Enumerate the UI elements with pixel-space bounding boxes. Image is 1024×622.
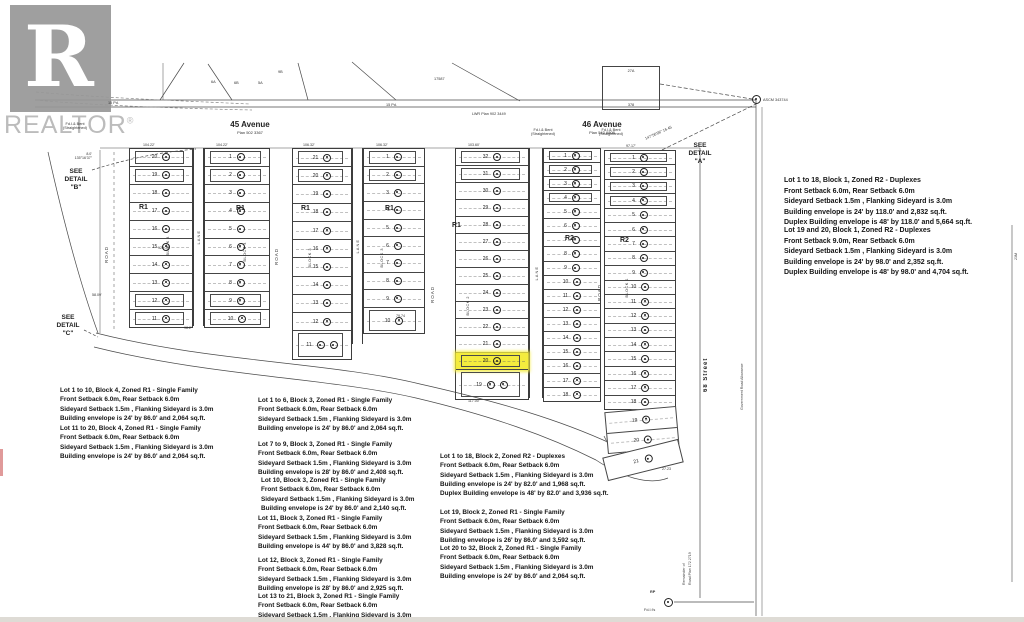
lot-row: 4 bbox=[544, 191, 600, 205]
lot-number: 7 bbox=[564, 237, 567, 243]
lot-number: 19 bbox=[476, 382, 482, 388]
survey-pin-icon bbox=[572, 250, 580, 258]
ascm-marker-icon bbox=[752, 95, 761, 104]
survey-pin-icon bbox=[162, 207, 170, 215]
see-detail-b: SEE DETAIL "B" bbox=[56, 168, 96, 192]
lot-number: 4 bbox=[229, 208, 232, 214]
survey-pin-icon bbox=[573, 320, 581, 328]
block-1-strip: 123456789101112131415161718 bbox=[604, 150, 676, 410]
lot-row: 11 bbox=[130, 310, 192, 327]
lot-number: 21 bbox=[483, 341, 489, 347]
lot-number: 4 bbox=[632, 198, 635, 204]
survey-pin-icon bbox=[493, 306, 501, 314]
lot-row: 8 bbox=[205, 274, 269, 292]
lot-row: 15 bbox=[293, 258, 351, 276]
survey-pin-icon bbox=[162, 279, 170, 287]
survey-pin-icon bbox=[394, 189, 402, 197]
lot-number: 15 bbox=[152, 244, 158, 250]
lot-number: 20 bbox=[152, 154, 158, 160]
lot-number: 7 bbox=[229, 262, 232, 268]
sub-lot-label: 9B bbox=[278, 70, 283, 74]
lot-number: 14 bbox=[152, 262, 158, 268]
survey-pin-icon bbox=[572, 222, 580, 230]
lot-row: 13 bbox=[544, 318, 600, 332]
zone-label: R1 bbox=[452, 222, 461, 229]
lot-number: 10 bbox=[385, 318, 391, 324]
survey-pin-icon bbox=[317, 341, 325, 349]
lot-row: 3 bbox=[544, 177, 600, 191]
lot-row: 14 bbox=[605, 338, 675, 352]
lot-number: 8 bbox=[386, 278, 389, 284]
lot-number: 17 bbox=[313, 228, 319, 234]
survey-pin-icon bbox=[237, 225, 245, 233]
lot-number: 2 bbox=[229, 172, 232, 178]
survey-pin-icon bbox=[640, 240, 648, 248]
lot-row: 32 bbox=[456, 149, 528, 166]
survey-pin-icon bbox=[323, 299, 331, 307]
lot-number: 17 bbox=[152, 208, 158, 214]
survey-pin-icon bbox=[640, 226, 648, 234]
lot-row: 11 bbox=[544, 290, 600, 304]
lot-row: 18 bbox=[544, 388, 600, 401]
scan-red-mark bbox=[0, 449, 3, 476]
lot-row: 2 bbox=[205, 167, 269, 185]
lot-number: 16 bbox=[563, 363, 569, 369]
lot-number: 25 bbox=[483, 273, 489, 279]
lot-number: 32 bbox=[483, 154, 489, 160]
lot-number: 16 bbox=[313, 246, 319, 252]
lot-row: 16 bbox=[544, 360, 600, 374]
survey-pin-icon bbox=[573, 348, 581, 356]
survey-pin-icon bbox=[573, 362, 581, 370]
dim-17587: 17587 bbox=[434, 77, 445, 81]
lot-number: 6 bbox=[229, 244, 232, 250]
lot-row: 30 bbox=[456, 183, 528, 200]
see-detail-a: SEE DETAIL "A" bbox=[678, 142, 722, 166]
frontage-dim: 97.17' bbox=[626, 144, 636, 148]
survey-pin-icon bbox=[487, 381, 495, 389]
sub-lot-label: 5A bbox=[258, 81, 263, 85]
survey-pin-icon bbox=[573, 278, 581, 286]
survey-pin-icon bbox=[323, 208, 331, 216]
lot-row: 1 bbox=[544, 149, 600, 163]
block-3-east-column: 12345678910 bbox=[363, 148, 425, 334]
survey-pin-icon bbox=[493, 357, 501, 365]
lot-row: 5 bbox=[205, 221, 269, 239]
lot-number: 20 bbox=[483, 358, 489, 364]
lot-number: 11 bbox=[563, 293, 568, 299]
survey-pin-icon bbox=[237, 171, 245, 179]
survey-pin-icon bbox=[572, 166, 580, 174]
zoning-note: Lot 1 to 18, Block 1, Zoned R2 - Duplexe… bbox=[784, 176, 1020, 229]
parcel-box-label: 27A bbox=[628, 69, 635, 73]
lot-row: 10 bbox=[544, 276, 600, 290]
lot-number: 6 bbox=[386, 243, 389, 249]
survey-pin-icon bbox=[640, 254, 648, 262]
lot-row: 8 bbox=[605, 252, 675, 266]
survey-pin-icon bbox=[572, 152, 580, 160]
lot-number: 15 bbox=[631, 356, 637, 362]
block-2-east-column: 123456789101112131415161718 bbox=[543, 148, 601, 402]
dim-label: 98.2' bbox=[184, 326, 192, 330]
survey-pin-icon bbox=[323, 263, 331, 271]
lot-number: 3 bbox=[229, 190, 232, 196]
survey-pin-icon bbox=[641, 298, 649, 306]
lot-row: 4 bbox=[364, 202, 424, 220]
government-road-label: Government Road Allowance bbox=[740, 300, 746, 410]
zoning-note: Lot 12, Block 3, Zoned R1 - Single Famil… bbox=[258, 556, 448, 593]
block-4-west-column: 20191817161514131211 bbox=[129, 148, 193, 328]
survey-pin-icon bbox=[641, 398, 649, 406]
lot-number: 18 bbox=[631, 399, 637, 405]
lot-row: 6 bbox=[544, 219, 600, 233]
block-name: BLOCK 3 bbox=[380, 248, 384, 268]
lot-number: 19 bbox=[152, 172, 158, 178]
zoning-note: Lot 20 to 32, Block 2, Zoned R1 - Single… bbox=[440, 544, 640, 581]
survey-pin-icon bbox=[323, 190, 331, 198]
lot-number: 21 bbox=[313, 155, 319, 161]
lot-number: 17 bbox=[563, 378, 569, 384]
lot-row: 15 bbox=[605, 352, 675, 366]
lot-row: 1 bbox=[364, 149, 424, 167]
block-4-lane: LANE bbox=[193, 148, 204, 326]
lot-row: 26 bbox=[456, 251, 528, 268]
survey-pin-icon bbox=[323, 172, 331, 180]
survey-pin-icon bbox=[237, 243, 245, 251]
survey-pin-icon bbox=[493, 221, 501, 229]
lot-row: 11 bbox=[605, 295, 675, 309]
lot-row: 7 bbox=[364, 255, 424, 273]
survey-pin-icon bbox=[644, 454, 654, 464]
lot-row: 12 bbox=[605, 309, 675, 323]
lot-number: 19 bbox=[313, 191, 319, 197]
survey-pin-icon bbox=[162, 225, 170, 233]
lot-row: 1 bbox=[205, 149, 269, 167]
lot-row: 28 bbox=[456, 217, 528, 234]
lot-row: 12 bbox=[130, 292, 192, 310]
survey-pin-icon bbox=[640, 269, 648, 277]
lot-row: 2 bbox=[364, 167, 424, 185]
lot-row: 3 bbox=[605, 180, 675, 194]
lot-row: 5 bbox=[364, 220, 424, 238]
lwr-plan-label: LWR Plan 902 3449 bbox=[472, 112, 506, 116]
survey-pin-icon bbox=[162, 315, 170, 323]
lot-number: 3 bbox=[632, 183, 635, 189]
lot-number: 5 bbox=[632, 212, 635, 218]
lot-number: 24 bbox=[483, 290, 489, 296]
survey-pin-icon bbox=[323, 318, 331, 326]
survey-pin-icon bbox=[493, 170, 501, 178]
lot-row: 9 bbox=[605, 266, 675, 280]
lot-row: 20 bbox=[456, 353, 528, 370]
avenue-45-label: 45 Avenue bbox=[218, 120, 282, 129]
lot-row: 9 bbox=[205, 292, 269, 310]
survey-pin-icon bbox=[237, 207, 245, 215]
lot-row: 2 bbox=[605, 165, 675, 179]
realtor-logo: R bbox=[10, 5, 111, 112]
zone-label: R1 bbox=[301, 205, 310, 212]
lot-row: 8 bbox=[544, 247, 600, 261]
lot-row: 16 bbox=[605, 367, 675, 381]
lot-number: 12 bbox=[152, 298, 158, 304]
lot-number: 4 bbox=[386, 207, 389, 213]
survey-pin-icon bbox=[573, 377, 581, 385]
fdi-label: Fd.I.t's bbox=[644, 608, 655, 612]
zone-label: R1 bbox=[139, 204, 148, 211]
lot-number: 11 bbox=[306, 342, 311, 348]
fd-bent-label: Fd.I.& Bent (Straightened) bbox=[596, 128, 626, 136]
survey-pin-icon bbox=[493, 255, 501, 263]
lot-number: 8 bbox=[229, 280, 232, 286]
lot-number: 13 bbox=[152, 280, 158, 286]
lot-row: 31 bbox=[456, 166, 528, 183]
lot-number: 20 bbox=[313, 173, 319, 179]
road-label: ROAD bbox=[104, 246, 109, 263]
lot-number: 1 bbox=[632, 155, 635, 161]
lot-row: 19 bbox=[456, 370, 528, 399]
survey-pin-icon bbox=[640, 182, 648, 190]
lot-number: 26 bbox=[483, 256, 489, 262]
survey-pin-icon bbox=[642, 415, 651, 424]
survey-pin-icon bbox=[493, 323, 501, 331]
lot-number: 15 bbox=[313, 264, 319, 270]
lot-row: 13 bbox=[293, 295, 351, 313]
fd-bent-label: Fd.I.& Bent (Straightened) bbox=[528, 128, 558, 136]
lot-number: 1 bbox=[229, 154, 232, 160]
lot-row: 7 bbox=[605, 237, 675, 251]
survey-pin-icon bbox=[572, 194, 580, 202]
survey-pin-icon bbox=[573, 306, 581, 314]
survey-pin-icon bbox=[238, 315, 246, 323]
lot-number: 1 bbox=[386, 154, 389, 160]
survey-pin-icon bbox=[394, 259, 402, 267]
block-name: BLOCK 1 bbox=[625, 278, 629, 298]
survey-pin-icon bbox=[493, 204, 501, 212]
lot-number: 31 bbox=[483, 171, 489, 177]
lot-row: 5 bbox=[544, 205, 600, 219]
survey-pin-icon bbox=[162, 171, 170, 179]
lot-row: 10 bbox=[205, 310, 269, 327]
survey-pin-icon bbox=[394, 242, 402, 250]
survey-pin-icon bbox=[237, 261, 245, 269]
sub-lot-label: 6A bbox=[211, 80, 216, 84]
survey-pin-icon bbox=[573, 391, 581, 399]
lot-row: 12 bbox=[293, 313, 351, 331]
lot-number: 8 bbox=[632, 255, 635, 261]
dim-label: 58.09' bbox=[92, 293, 102, 297]
rp-label: RP bbox=[650, 590, 655, 594]
see-detail-c: SEE DETAIL "C" bbox=[48, 314, 88, 338]
lot-row: 14 bbox=[293, 277, 351, 295]
lot-row: 16 bbox=[130, 221, 192, 239]
survey-pin-icon bbox=[162, 153, 170, 161]
survey-pin-icon bbox=[641, 355, 649, 363]
zoning-note: Lot 1 to 18, Block 2, Zoned R2 - Duplexe… bbox=[440, 452, 640, 498]
survey-pin-icon bbox=[572, 264, 580, 272]
road-label: ROAD bbox=[274, 248, 279, 265]
survey-pin-icon bbox=[641, 384, 649, 392]
survey-pin-icon bbox=[323, 227, 331, 235]
frontage-dim: 104.22' bbox=[143, 143, 155, 147]
survey-pin-icon bbox=[323, 154, 331, 162]
lot-row: 5 bbox=[605, 209, 675, 223]
lot-number: 9 bbox=[229, 298, 232, 304]
survey-pin-icon bbox=[323, 245, 331, 253]
lot-number: 12 bbox=[313, 319, 319, 325]
lot-row: 2 bbox=[544, 163, 600, 177]
survey-pin-icon bbox=[493, 340, 501, 348]
survey-pin-icon bbox=[640, 154, 648, 162]
survey-pin-icon bbox=[237, 189, 245, 197]
frontage-dim: 103.60' bbox=[468, 143, 480, 147]
block-4-east-column: 12345678910 bbox=[204, 148, 270, 328]
lot-number: 18 bbox=[563, 392, 569, 398]
lot-number: 20 bbox=[633, 438, 639, 444]
lot-row: 17 bbox=[605, 381, 675, 395]
lot-number: 17 bbox=[631, 385, 637, 391]
lot-row: 19 bbox=[130, 167, 192, 185]
lot-row: 25 bbox=[456, 268, 528, 285]
lot-number: 29 bbox=[483, 205, 489, 211]
block-3-lane: LANE bbox=[352, 148, 363, 344]
parcel-box: 27A 378 bbox=[602, 66, 660, 110]
lot-number: 27 bbox=[483, 239, 489, 245]
survey-pin-icon bbox=[640, 211, 648, 219]
frontage-dim: 106.32' bbox=[376, 143, 388, 147]
zone-label: R2 bbox=[620, 237, 629, 244]
survey-pin-icon bbox=[237, 297, 245, 305]
lot-number: 8 bbox=[564, 251, 567, 257]
dim-label: 8.0' 135°16'37" bbox=[52, 152, 92, 160]
survey-pin-icon bbox=[493, 153, 501, 161]
block-name: BLOCK 2 bbox=[466, 296, 470, 316]
lot-row: 29 bbox=[456, 200, 528, 217]
lot-row: 1 bbox=[605, 151, 675, 165]
lot-row: 17 bbox=[544, 374, 600, 388]
lot-number: 9 bbox=[632, 270, 635, 276]
zoning-note: Lot 1 to 10, Block 4, Zoned R1 - Single … bbox=[60, 386, 265, 423]
sub-lot-label: 6B bbox=[234, 81, 239, 85]
realtor-logo-letter: R bbox=[24, 7, 94, 107]
lot-row: 20 bbox=[130, 149, 192, 167]
zoning-note: Lot 10, Block 3, Zoned R1 - Single Famil… bbox=[261, 476, 451, 513]
survey-pin-icon bbox=[573, 334, 581, 342]
dim-label: 27.23 bbox=[662, 467, 671, 471]
road-label: ROAD bbox=[597, 284, 602, 301]
survey-pin-icon bbox=[572, 208, 580, 216]
survey-pin-icon bbox=[162, 261, 170, 269]
pd-label: 15 Pd. bbox=[386, 103, 397, 107]
survey-pin-icon bbox=[493, 272, 501, 280]
survey-pin-icon bbox=[493, 238, 501, 246]
lot-number: 4 bbox=[564, 195, 567, 201]
lot-number: 18 bbox=[313, 209, 319, 215]
block-3-west-column: 2120191817161514131211 bbox=[292, 148, 352, 360]
lot-row: 16 bbox=[293, 240, 351, 258]
survey-pin-icon bbox=[641, 283, 649, 291]
lot-row: 14 bbox=[130, 256, 192, 274]
zoning-note: Lot 1 to 6, Block 3, Zoned R1 - Single F… bbox=[258, 396, 448, 433]
lot-number: 28 bbox=[483, 222, 489, 228]
survey-pin-icon bbox=[162, 189, 170, 197]
frontage-dim: 106.32' bbox=[303, 143, 315, 147]
lot-number: 5 bbox=[386, 225, 389, 231]
survey-pin-icon bbox=[237, 279, 245, 287]
lot-number: 13 bbox=[563, 321, 569, 327]
parcel-box-label: 378 bbox=[628, 103, 634, 107]
survey-pin-icon bbox=[572, 236, 580, 244]
pd-label: 15 Pd. bbox=[108, 101, 119, 105]
survey-pin-icon bbox=[237, 153, 245, 161]
rp-marker-icon bbox=[664, 598, 673, 607]
survey-pin-icon bbox=[573, 292, 581, 300]
survey-pin-icon bbox=[644, 435, 653, 444]
lot-row: 21 bbox=[456, 336, 528, 353]
lot-row: 17 bbox=[293, 222, 351, 240]
lot-row: 20 bbox=[293, 167, 351, 185]
lot-row: 7 bbox=[205, 256, 269, 274]
lot-row: 21 bbox=[293, 149, 351, 167]
road-label: ROAD bbox=[430, 286, 435, 303]
lot-number: 14 bbox=[631, 342, 637, 348]
plat-survey-page: { "watermark": { "brand": "REALTOR", "re… bbox=[0, 0, 1024, 622]
scan-edge bbox=[0, 617, 1024, 622]
zoning-note: Lot 13 to 21, Block 3, Zoned R1 - Single… bbox=[258, 592, 448, 620]
survey-pin-icon bbox=[330, 341, 338, 349]
lot-row: 3 bbox=[364, 184, 424, 202]
survey-pin-icon bbox=[641, 341, 649, 349]
lot-row: 8 bbox=[364, 273, 424, 291]
lot-number: 12 bbox=[631, 313, 637, 319]
lot-number: 7 bbox=[386, 260, 389, 266]
lot-number: 19 bbox=[632, 417, 638, 423]
lot-number: 12 bbox=[563, 307, 569, 313]
lot-number: 1 bbox=[564, 153, 567, 159]
lot-number: 6 bbox=[632, 227, 635, 233]
lot-number: 5 bbox=[229, 226, 232, 232]
dim-label: 117.00' bbox=[468, 399, 479, 403]
lot-number: 9 bbox=[386, 296, 389, 302]
lot-number: 16 bbox=[631, 371, 637, 377]
survey-pin-icon bbox=[640, 168, 648, 176]
block-name: BLOCK 3 bbox=[308, 248, 312, 268]
avenue-45-plan: Plan 502 3367 bbox=[218, 130, 282, 135]
survey-pin-icon bbox=[162, 297, 170, 305]
lot-number: 18 bbox=[152, 190, 158, 196]
lot-row: 6 bbox=[364, 237, 424, 255]
lot-number: 11 bbox=[631, 299, 636, 305]
street-68-label: 68 Street bbox=[703, 342, 709, 392]
lot-row: 11 bbox=[293, 331, 351, 359]
block-2-lane: LANE bbox=[529, 148, 543, 398]
lot-number: 13 bbox=[631, 327, 637, 333]
lot-row: 13 bbox=[605, 324, 675, 338]
lot-number: 16 bbox=[152, 226, 158, 232]
zoning-note: Lot 19, Block 2, Zoned R1 - Single Famil… bbox=[440, 508, 640, 545]
block-1-column: 123456789101112131415161718 bbox=[604, 150, 676, 410]
lot-number: 5 bbox=[564, 209, 567, 215]
survey-pin-icon bbox=[641, 326, 649, 334]
survey-pin-icon bbox=[394, 153, 402, 161]
block-2-strip: 3231302928272625242322212019 LANE 123456… bbox=[455, 148, 601, 402]
lot-row: 14 bbox=[544, 332, 600, 346]
survey-pin-icon bbox=[394, 224, 402, 232]
ascm-marker: ASCM 343744 bbox=[752, 95, 788, 104]
survey-pin-icon bbox=[572, 180, 580, 188]
survey-pin-icon bbox=[640, 197, 648, 205]
block-4-strip: 20191817161514131211 LANE 12345678910 bbox=[129, 148, 270, 328]
lot-number: 23 bbox=[483, 307, 489, 313]
